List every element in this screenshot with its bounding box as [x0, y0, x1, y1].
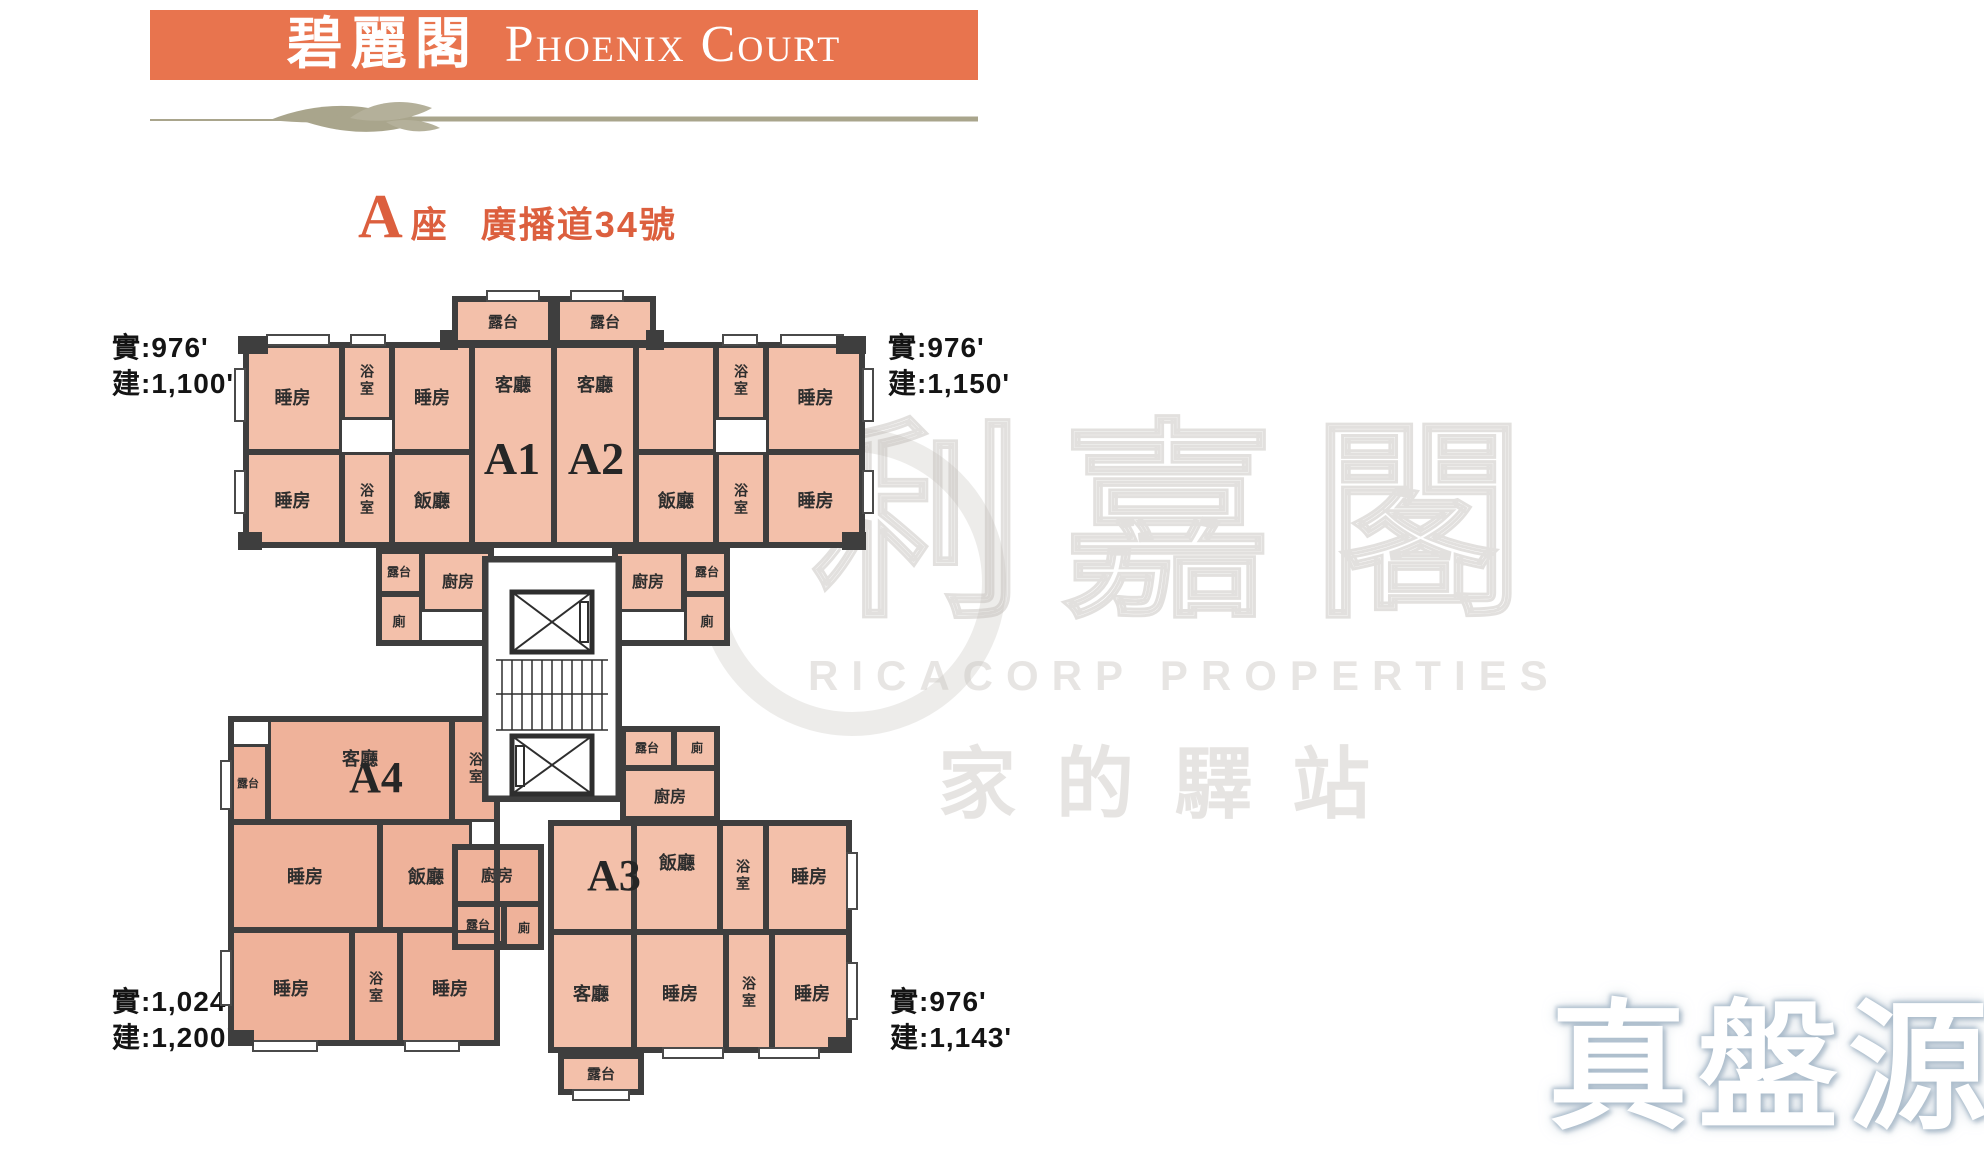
room-a1-balcony-top: 露台: [452, 296, 554, 346]
room-a3-bathroom-2-label: 浴室: [739, 976, 759, 1010]
room-a2-balcony-top: 露台: [554, 296, 656, 346]
room-a2-bathroom-2-label: 浴室: [731, 483, 751, 517]
window-mark-18: [572, 1089, 630, 1101]
wall-pier-2: [646, 330, 664, 350]
room-a4-bedroom-3-label: 睡房: [432, 975, 468, 1001]
room-a3-balcony-top-label: 露台: [635, 739, 659, 756]
room-a2-bedroom-2-label: 睡房: [798, 487, 834, 513]
window-mark-17: [758, 1047, 820, 1059]
room-a4-bathroom-2: 浴室: [352, 930, 400, 1046]
room-a2-balcony-top-label: 露台: [590, 311, 620, 332]
room-a3-toilet: 廁: [674, 726, 720, 768]
room-a1-bathroom-2-label: 浴室: [357, 483, 377, 517]
room-a1-living-label: 客廳: [495, 345, 531, 397]
window-mark-5: [780, 334, 844, 346]
room-a3-bathroom-1: 浴室: [720, 820, 766, 932]
room-a3-living: 客廳: [548, 932, 634, 1053]
floor-plan: 露台露台睡房浴室睡房客廳客廳浴室睡房睡房浴室飯廳飯廳浴室睡房露台廚房廁廚房露台廁…: [0, 0, 1984, 1160]
room-a4-bedroom-1-label: 睡房: [287, 863, 323, 889]
window-mark-7: [234, 470, 246, 514]
room-a3-dining-label: 飯廳: [659, 823, 695, 875]
room-a1-bedroom-1: 睡房: [243, 342, 342, 452]
room-a3-kitchen-label: 廚房: [654, 783, 686, 807]
room-a1-kitchen-balcony: 露台: [376, 548, 422, 594]
room-a3-bedroom-2-label: 睡房: [662, 980, 698, 1006]
room-a4-kitchen: 廚房: [452, 844, 542, 904]
unit-label-a4: A4: [330, 756, 422, 806]
room-a1-bathroom-1-label: 浴室: [357, 364, 377, 398]
room-a2-bathroom-1: 浴室: [716, 342, 766, 420]
room-a2-bedroom-1: 睡房: [766, 342, 865, 452]
floor-plan-page: { "header": { "title_zh": "碧麗閣", "title_…: [0, 0, 1984, 1160]
window-mark-4: [722, 334, 758, 346]
elevator-stairs-core: [482, 556, 622, 802]
room-a4-bedroom-2-label: 睡房: [273, 975, 309, 1001]
room-a1-dining-label: 飯廳: [414, 487, 450, 513]
window-mark-3: [570, 290, 624, 302]
room-a3-bedroom-3: 睡房: [772, 932, 852, 1053]
room-a1-kitchen-balcony-label: 露台: [387, 563, 411, 580]
room-a2-bathroom-2: 浴室: [716, 452, 766, 548]
room-a2-kitchen: 廚房: [612, 548, 684, 612]
wall-pier-3: [836, 336, 866, 354]
room-a2-toilet-label: 廁: [700, 611, 713, 630]
room-a1-bedroom-2-label: 睡房: [414, 384, 450, 410]
window-mark-8: [862, 368, 874, 422]
watermark-source-logo: 真盤源: [1548, 998, 1984, 1138]
room-a1-bedroom-3-label: 睡房: [275, 487, 311, 513]
room-a3-balcony-bottom-label: 露台: [587, 1064, 615, 1084]
room-a3-bathroom-1-label: 浴室: [733, 859, 753, 893]
room-a4-toilet-label: 廁: [518, 919, 530, 936]
room-a3-bedroom-2: 睡房: [634, 932, 726, 1053]
unit-label-a1: A1: [466, 436, 558, 488]
window-mark-11: [220, 950, 232, 1006]
room-a3-living-label: 客廳: [573, 980, 609, 1006]
window-mark-12: [252, 1040, 318, 1052]
room-a4-balcony-label: 露台: [237, 775, 259, 791]
wall-pier-4: [238, 532, 262, 550]
room-a3-kitchen: 廚房: [620, 768, 720, 822]
room-a4-bedroom-3: 睡房: [400, 930, 500, 1046]
room-a4-bathroom-2-label: 浴室: [366, 971, 386, 1005]
room-a1-bathroom-1: 浴室: [342, 342, 392, 420]
room-a3-bedroom-3-label: 睡房: [794, 980, 830, 1006]
unit-label-a2: A2: [550, 436, 642, 488]
room-a2-dining: 飯廳: [636, 452, 716, 548]
room-a2-living-label: 客廳: [577, 345, 613, 397]
room-a2-toilet: 廁: [684, 594, 730, 646]
window-mark-16: [662, 1047, 724, 1059]
room-a1-toilet: 廁: [376, 594, 422, 646]
room-a1-bathroom-2: 浴室: [342, 452, 392, 548]
wall-pier-0: [238, 336, 268, 354]
window-mark-0: [266, 334, 330, 346]
room-a1-bedroom-2: 睡房: [392, 342, 472, 452]
room-a3-bedroom-1-label: 睡房: [791, 863, 827, 889]
window-mark-1: [350, 334, 386, 346]
room-a4-bedroom-2: 睡房: [230, 930, 352, 1046]
room-a3-balcony-top: 露台: [620, 726, 674, 768]
room-a1-dining: 飯廳: [392, 452, 472, 548]
room-a4-dining-label: 飯廳: [408, 863, 444, 889]
room-a2-kitchen-label: 廚房: [632, 568, 664, 592]
wall-pier-7: [828, 1037, 852, 1053]
room-a3-toilet-label: 廁: [691, 739, 703, 756]
room-a2-kitchen-balcony: 露台: [684, 548, 730, 594]
room-a2-bathroom-1-label: 浴室: [731, 364, 751, 398]
window-mark-13: [404, 1040, 460, 1052]
room-a1-bedroom-1-label: 睡房: [275, 384, 311, 410]
window-mark-14: [846, 852, 858, 910]
window-mark-2: [486, 290, 540, 302]
room-a2-dining-label: 飯廳: [658, 487, 694, 513]
room-a2-bedroom-1-label: 睡房: [798, 384, 834, 410]
room-a2-store-room: [636, 342, 716, 452]
room-a1-balcony-top-label: 露台: [488, 311, 518, 332]
room-a1-toilet-label: 廁: [392, 611, 405, 630]
window-mark-15: [846, 962, 858, 1020]
room-a4-toilet: 廁: [504, 904, 544, 950]
room-a1-kitchen-label: 廚房: [442, 568, 474, 592]
unit-label-a3: A3: [568, 854, 660, 904]
room-a4-bedroom-1: 睡房: [230, 822, 380, 930]
window-mark-9: [862, 470, 874, 514]
room-a2-kitchen-balcony-label: 露台: [695, 563, 719, 580]
wall-pier-5: [842, 532, 866, 550]
room-a4-kitchen-label: 廚房: [481, 862, 513, 886]
room-a4-balcony: 露台: [228, 744, 268, 822]
room-a3-bedroom-1: 睡房: [766, 820, 852, 932]
wall-pier-1: [440, 330, 458, 350]
room-a3-bathroom-2: 浴室: [726, 932, 772, 1053]
wall-pier-6: [228, 1030, 254, 1046]
window-mark-10: [220, 760, 232, 810]
window-mark-6: [234, 368, 246, 422]
